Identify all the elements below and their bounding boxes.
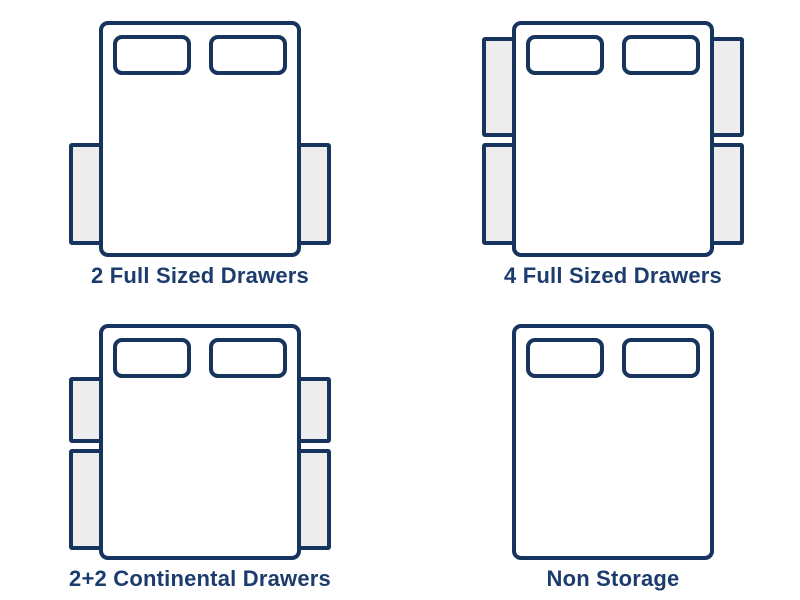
diagram-label-4-full-sized-drawers: 4 Full Sized Drawers — [413, 261, 800, 291]
pillow-right-icon — [211, 37, 285, 73]
pillow-left-icon — [528, 37, 602, 73]
diagram-label-2-full-sized-drawers: 2 Full Sized Drawers — [0, 261, 400, 291]
drawer-left-full_top — [484, 39, 516, 135]
pillow-right-icon — [624, 37, 698, 73]
diagram-cell-non-storage: Non Storage — [400, 300, 800, 600]
diagram-cell-2-full-sized-drawers: 2 Full Sized Drawers — [0, 0, 400, 300]
pillow-right-icon — [624, 340, 698, 376]
drawer-left-continental_top — [71, 379, 103, 441]
drawer-left-full_bottom — [484, 145, 516, 243]
pillow-left-icon — [115, 340, 189, 376]
drawer-right-full_bottom — [297, 145, 329, 243]
drawer-right-continental_bottom — [297, 451, 329, 548]
diagram-label-non-storage: Non Storage — [413, 564, 800, 594]
diagram-cell-4-full-sized-drawers: 4 Full Sized Drawers — [400, 0, 800, 300]
drawer-left-full_bottom — [71, 145, 103, 243]
drawer-right-full_top — [710, 39, 742, 135]
storage-options-grid: 2 Full Sized Drawers 4 Full Sized Drawer… — [0, 0, 800, 600]
drawer-right-full_bottom — [710, 145, 742, 243]
drawer-right-continental_top — [297, 379, 329, 441]
bed-diagram-2-full-sized-drawers-icon — [0, 0, 400, 260]
pillow-left-icon — [528, 340, 602, 376]
bed-diagram-non-storage-icon — [413, 303, 800, 563]
bed-diagram-4-full-sized-drawers-icon — [413, 0, 800, 260]
drawer-left-continental_bottom — [71, 451, 103, 548]
bed-diagram-2-plus-2-continental-drawers-icon — [0, 303, 400, 563]
pillow-right-icon — [211, 340, 285, 376]
pillow-left-icon — [115, 37, 189, 73]
diagram-label-2-plus-2-continental-drawers: 2+2 Continental Drawers — [0, 564, 400, 594]
diagram-cell-2-plus-2-continental-drawers: 2+2 Continental Drawers — [0, 300, 400, 600]
